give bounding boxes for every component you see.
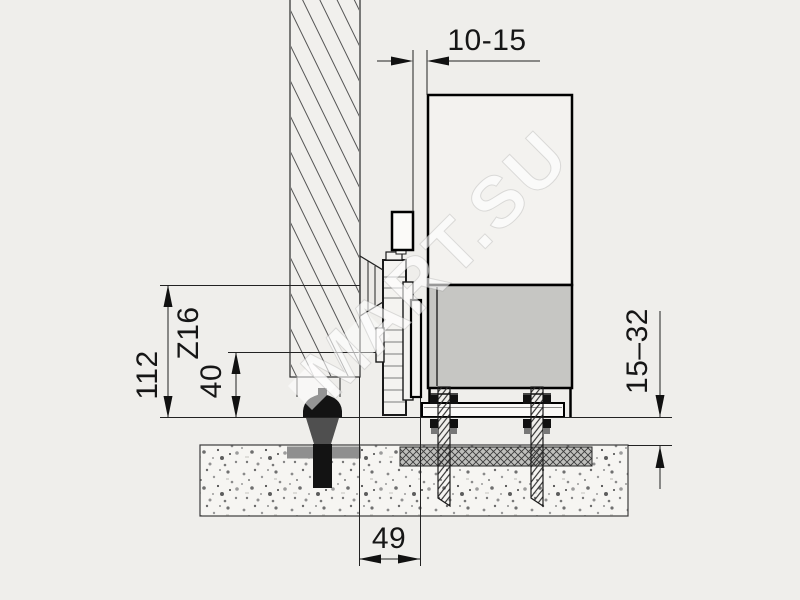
technical-drawing-page: 10-15 112 Z16 40 15–32 49 MART.SU	[0, 0, 800, 600]
dimension-label-bottom-offset: 49	[372, 522, 406, 555]
dimension-label-ground-clearance: 15–32	[621, 308, 654, 394]
dimension-label-height-inner: 40	[195, 364, 228, 398]
sliding-gate-cross-section-drawing: 10-15 112 Z16 40 15–32 49 MART.SU	[0, 0, 800, 600]
insulation-strip	[400, 447, 592, 466]
dimension-label-height-total: 112	[131, 350, 164, 399]
dimension-label-top-gap: 10-15	[447, 24, 526, 57]
anchor-stem	[313, 444, 332, 488]
dimension-label-bracket-code: Z16	[172, 306, 205, 359]
